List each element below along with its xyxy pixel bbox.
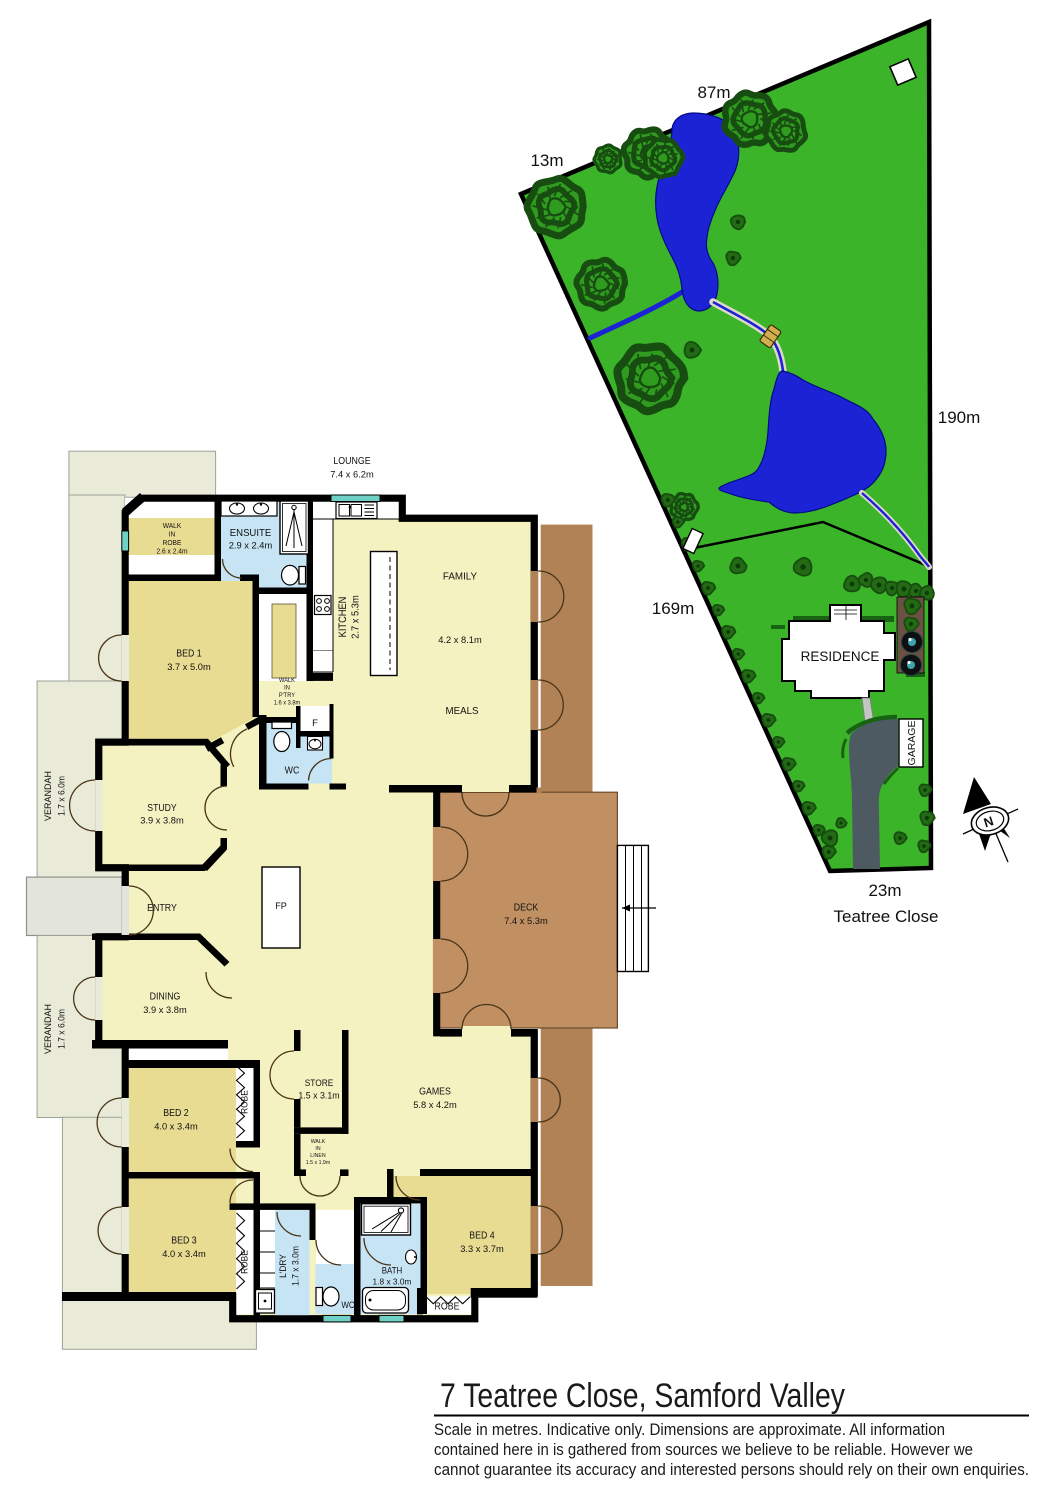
svg-text:3.9 x 3.8m: 3.9 x 3.8m <box>140 816 184 827</box>
svg-text:7.4 x 5.3m: 7.4 x 5.3m <box>504 916 548 927</box>
svg-text:STORE: STORE <box>305 1078 334 1089</box>
svg-text:cannot guarantee its accuracy: cannot guarantee its accuracy and intere… <box>434 1461 1029 1479</box>
svg-text:LOUNGE: LOUNGE <box>333 456 370 467</box>
svg-text:5.8 x 4.2m: 5.8 x 4.2m <box>413 1100 457 1111</box>
svg-text:1.5 x 1.9m: 1.5 x 1.9m <box>306 1160 331 1166</box>
svg-text:2.6 x 2.4m: 2.6 x 2.4m <box>156 549 187 556</box>
svg-text:7.4 x 6.2m: 7.4 x 6.2m <box>330 470 374 481</box>
svg-text:BED 1: BED 1 <box>176 649 202 660</box>
svg-text:FAMILY: FAMILY <box>443 572 478 583</box>
svg-text:WALK: WALK <box>311 1139 326 1145</box>
svg-text:L'DRY: L'DRY <box>278 1254 289 1278</box>
svg-text:IN: IN <box>315 1146 320 1152</box>
svg-text:WC: WC <box>341 1300 355 1310</box>
svg-text:BED 4: BED 4 <box>469 1231 495 1242</box>
svg-text:GAMES: GAMES <box>419 1087 451 1098</box>
svg-text:WC: WC <box>285 766 300 777</box>
svg-text:ROBE: ROBE <box>435 1302 460 1313</box>
svg-text:P'TRY: P'TRY <box>279 693 295 699</box>
svg-text:1.7 x 3.0m: 1.7 x 3.0m <box>291 1246 301 1286</box>
svg-text:STUDY: STUDY <box>147 803 177 814</box>
svg-text:DECK: DECK <box>514 903 539 914</box>
svg-text:contained here in is gathered: contained here in is gathered from sourc… <box>434 1441 973 1459</box>
svg-text:2.7 x 5.3m: 2.7 x 5.3m <box>351 595 362 638</box>
svg-text:169m: 169m <box>652 599 695 618</box>
svg-text:VERANDAH: VERANDAH <box>43 771 54 821</box>
svg-text:4.0 x 3.4m: 4.0 x 3.4m <box>154 1122 198 1133</box>
svg-text:Scale in metres. Indicative on: Scale in metres. Indicative only. Dimens… <box>434 1421 945 1439</box>
svg-text:LINEN: LINEN <box>310 1153 325 1159</box>
svg-text:BED 2: BED 2 <box>163 1108 189 1119</box>
svg-text:13m: 13m <box>530 151 563 170</box>
svg-text:1.6 x 3.8m: 1.6 x 3.8m <box>274 701 301 707</box>
svg-text:WALK: WALK <box>163 523 182 530</box>
svg-text:ROBE: ROBE <box>240 1250 251 1274</box>
svg-text:2.9 x 2.4m: 2.9 x 2.4m <box>229 541 273 552</box>
svg-text:190m: 190m <box>938 408 981 427</box>
svg-text:1.8 x 3.0m: 1.8 x 3.0m <box>373 1277 412 1287</box>
svg-text:FP: FP <box>275 901 287 912</box>
svg-text:IN: IN <box>284 686 290 692</box>
svg-text:4.2 x 8.1m: 4.2 x 8.1m <box>438 635 482 646</box>
svg-text:BED 3: BED 3 <box>171 1236 197 1247</box>
svg-text:GARAGE: GARAGE <box>906 721 918 766</box>
svg-text:23m: 23m <box>868 881 901 900</box>
svg-text:F: F <box>312 718 318 729</box>
svg-text:1.7 x 6.0m: 1.7 x 6.0m <box>57 1009 67 1049</box>
svg-text:ENSUITE: ENSUITE <box>230 527 271 539</box>
svg-text:WALK: WALK <box>279 678 295 684</box>
svg-text:87m: 87m <box>697 83 730 102</box>
svg-text:7 Teatree Close, Samford Valle: 7 Teatree Close, Samford Valley <box>440 1377 845 1415</box>
svg-text:ROBE: ROBE <box>240 1090 251 1114</box>
svg-text:VERANDAH: VERANDAH <box>43 1004 54 1054</box>
svg-text:RESIDENCE: RESIDENCE <box>801 649 880 664</box>
svg-text:DINING: DINING <box>150 992 181 1003</box>
svg-text:3.3 x 3.7m: 3.3 x 3.7m <box>460 1244 504 1255</box>
svg-text:BATH: BATH <box>382 1266 403 1276</box>
svg-text:MEALS: MEALS <box>446 706 479 717</box>
svg-text:1.7 x 6.0m: 1.7 x 6.0m <box>57 776 67 816</box>
svg-text:ENTRY: ENTRY <box>147 903 177 914</box>
svg-text:Teatree Close: Teatree Close <box>834 907 939 926</box>
svg-text:ROBE: ROBE <box>163 540 182 547</box>
svg-text:KITCHEN: KITCHEN <box>337 597 349 638</box>
svg-text:3.9 x 3.8m: 3.9 x 3.8m <box>143 1005 187 1016</box>
svg-text:4.0 x 3.4m: 4.0 x 3.4m <box>162 1249 206 1260</box>
svg-text:3.7 x 5.0m: 3.7 x 5.0m <box>167 662 211 673</box>
svg-text:1.5 x 3.1m: 1.5 x 3.1m <box>298 1091 339 1101</box>
svg-text:IN: IN <box>169 532 176 539</box>
